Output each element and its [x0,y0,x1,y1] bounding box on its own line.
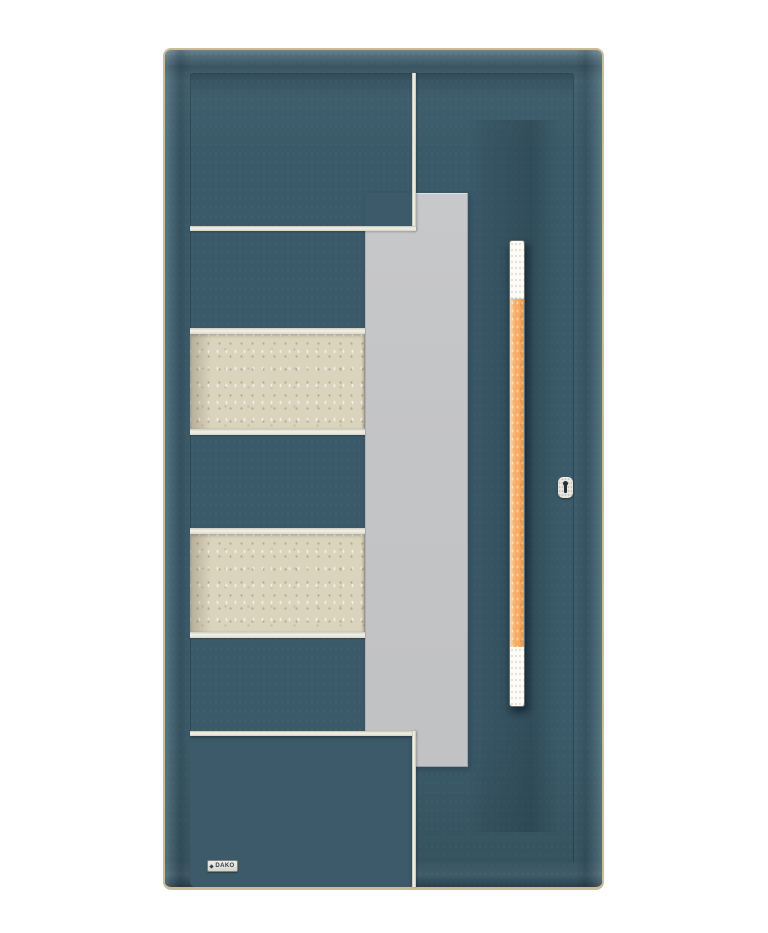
entrance-door: DAKO [163,48,604,890]
glass-panel [365,193,468,767]
brand-logo-icon [210,864,214,868]
page-background: { "subject": "modern exterior front door… [0,0,768,933]
brand-label: DAKO [215,863,234,869]
handle-bottom-cap [510,647,524,706]
stone-divider-strip [190,632,365,638]
pull-handle [509,240,525,707]
keyhole-icon [558,477,573,498]
lock-cylinder [558,477,573,498]
stone-insert-panel [190,534,365,632]
steel-inlay-horizontal-top [190,226,416,231]
handle-top-cap [510,241,524,299]
handle-grip [510,299,524,647]
top-edge-shadow [191,74,573,98]
stone-insert-panel [190,334,365,429]
steel-inlay-bottom-horizontal [190,731,416,736]
steel-inlay-vertical-top [412,73,416,231]
brand-plaque: DAKO [207,860,238,872]
steel-inlay-bottom-vertical [412,731,416,887]
stone-divider-strip [190,429,365,435]
